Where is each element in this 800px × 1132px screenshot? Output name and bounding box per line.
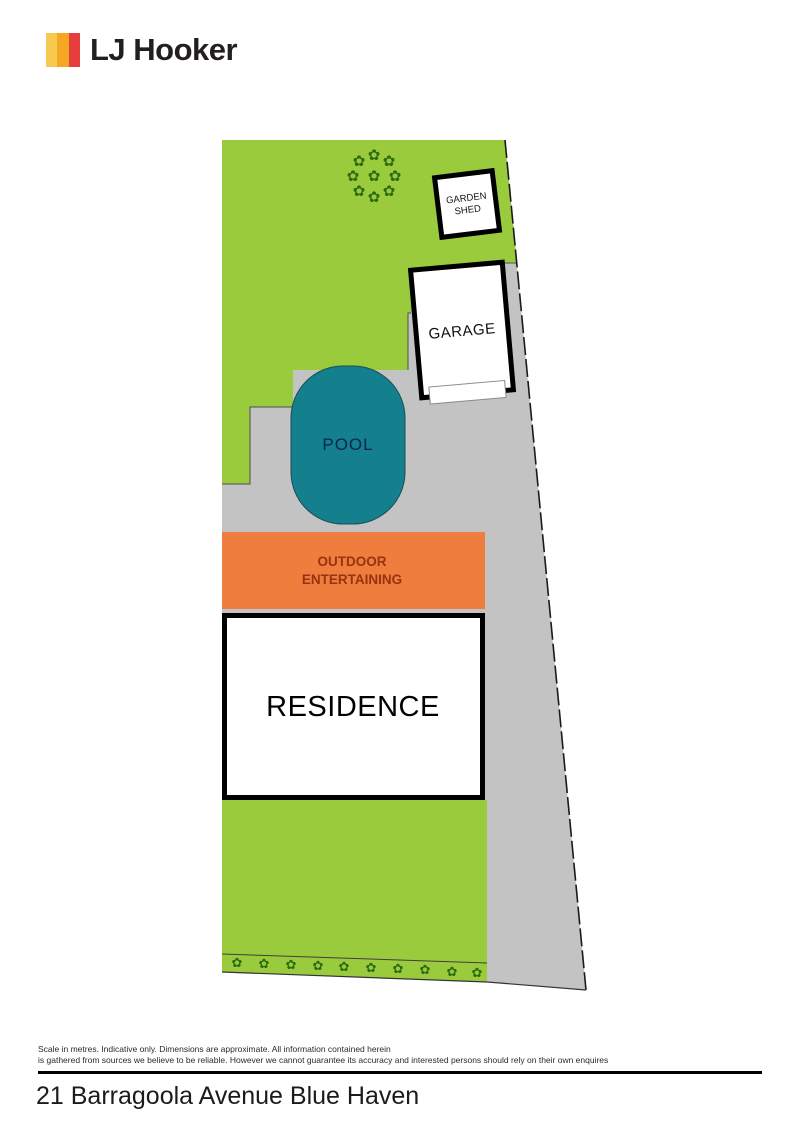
flower-icon: ✿ (393, 961, 404, 976)
outdoor-label-line2: ENTERTAINING (302, 572, 402, 587)
outdoor-entertaining-area (222, 532, 485, 609)
pool-label: POOL (322, 435, 373, 454)
flower-icon: ✿ (366, 960, 377, 975)
tree-flower-icon: ✿ (383, 183, 396, 200)
flower-icon: ✿ (313, 958, 324, 973)
flower-icon: ✿ (259, 956, 270, 971)
disclaimer: Scale in metres. Indicative only. Dimens… (38, 1044, 738, 1065)
flower-icon: ✿ (447, 964, 458, 979)
flower-icon: ✿ (420, 962, 431, 977)
garden-shed: GARDEN SHED (435, 171, 500, 238)
frontyard-grass (222, 800, 487, 982)
flower-icon: ✿ (339, 959, 350, 974)
disclaimer-line1: Scale in metres. Indicative only. Dimens… (38, 1044, 738, 1055)
site-plan: ✿ ✿ ✿ ✿ ✿ ✿ ✿ ✿ ✿ POOL GARDEN SHED GARAG… (0, 0, 800, 1132)
tree-flower-icon: ✿ (368, 147, 381, 164)
disclaimer-line2: is gathered from sources we believe to b… (38, 1055, 738, 1066)
flower-icon: ✿ (232, 955, 243, 970)
flower-icon: ✿ (472, 965, 483, 980)
footer-divider (38, 1071, 762, 1074)
tree-flower-icon: ✿ (353, 183, 366, 200)
tree-flower-icon: ✿ (383, 153, 396, 170)
tree-icon: ✿ ✿ ✿ ✿ ✿ ✿ ✿ ✿ ✿ (347, 147, 402, 206)
garage: GARAGE (411, 262, 514, 405)
residence-label: RESIDENCE (266, 691, 440, 723)
property-address: 21 Barragoola Avenue Blue Haven (36, 1082, 419, 1111)
tree-flower-icon: ✿ (368, 168, 381, 185)
outdoor-label-line1: OUTDOOR (318, 554, 387, 569)
tree-flower-icon: ✿ (368, 189, 381, 206)
flower-icon: ✿ (286, 957, 297, 972)
